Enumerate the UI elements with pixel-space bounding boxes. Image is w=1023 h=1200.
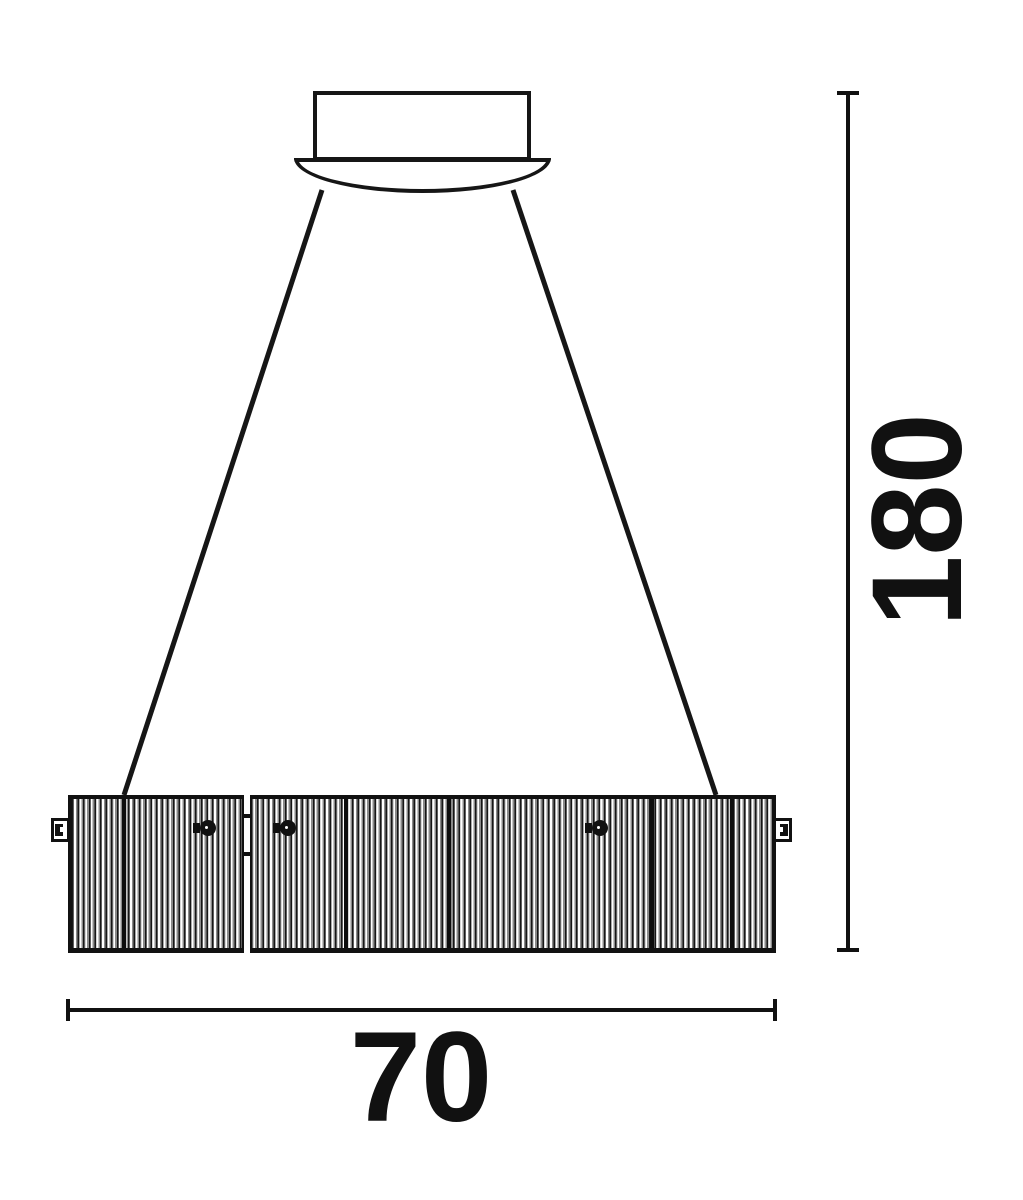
side-clip-right [773, 818, 792, 842]
clip-core [55, 824, 63, 836]
ceiling-canopy-dish [294, 158, 551, 193]
dimension-diagram: 180 70 [0, 0, 1023, 1200]
rod-separator [730, 799, 734, 948]
suspension-wire-right [513, 190, 716, 795]
screw-knob-tab [585, 823, 592, 833]
screw-knob [200, 820, 216, 836]
height-dimension-end-cap-bottom [837, 948, 859, 952]
drum-shade [68, 795, 776, 953]
screw-knob [592, 820, 608, 836]
clip-slot [780, 827, 783, 832]
seam-rung [242, 814, 252, 818]
width-dimension-end-cap-right [773, 999, 777, 1021]
height-dimension-end-cap-top [837, 91, 859, 95]
rod-separator [344, 799, 348, 948]
rod-separator [122, 799, 126, 948]
width-dimension-label: 70 [271, 1014, 571, 1142]
side-clip-left [51, 818, 70, 842]
ceiling-canopy-body [313, 91, 531, 161]
clip-slot [60, 827, 63, 832]
suspension-wire-left [124, 190, 322, 795]
rod-separator [650, 799, 654, 948]
clip-core [780, 824, 788, 836]
screw-knob-tab [193, 823, 200, 833]
width-dimension-end-cap-left [66, 999, 70, 1021]
screw-knob-tab [273, 823, 280, 833]
seam-rung [242, 852, 252, 856]
height-dimension-label: 180 [854, 370, 982, 670]
panel-seam [242, 795, 252, 953]
rod-separator [447, 799, 451, 948]
screw-knob [280, 820, 296, 836]
